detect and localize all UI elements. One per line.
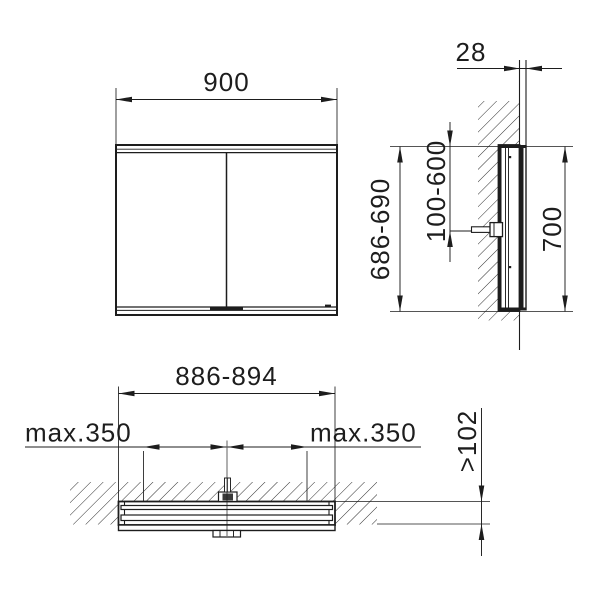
- arrowhead: [397, 296, 403, 312]
- wall-hatch: [478, 101, 520, 147]
- dim-label-max350-right: max.350: [310, 418, 417, 448]
- hinge-mark: [509, 156, 511, 158]
- arrowhead: [562, 147, 568, 163]
- bolt-shaft: [472, 227, 491, 233]
- dim-recess-depth: >102: [452, 408, 484, 556]
- arrowhead: [397, 147, 403, 163]
- hanger-bolt: [450, 223, 503, 237]
- arrowhead: [211, 444, 227, 450]
- mirror-door-slab: [520, 146, 524, 309]
- screw-head: [223, 494, 234, 501]
- wall-hatch: [70, 482, 119, 525]
- bolt-head: [490, 223, 503, 237]
- dim-mounting-height: 100-600: [421, 122, 453, 262]
- plan-view: 886-894 max.350 max.350 >102: [25, 361, 490, 556]
- arrowhead: [119, 391, 135, 397]
- front-view: 900: [116, 67, 337, 315]
- top-cap: [499, 145, 527, 148]
- logo-mark: [325, 305, 331, 307]
- dim-height-700: 700: [537, 147, 568, 312]
- bottom-handle-bar: [210, 307, 243, 310]
- dim-label-100-600: 100-600: [421, 140, 451, 242]
- arrowhead: [116, 97, 132, 103]
- arrowhead: [144, 444, 160, 450]
- dim-label-gt102: >102: [452, 410, 482, 473]
- arrowhead: [228, 444, 244, 450]
- side-view: 28 686-690 100-600 700: [365, 37, 573, 350]
- dim-label-886-894: 886-894: [175, 361, 277, 391]
- dim-label-28: 28: [456, 37, 487, 67]
- wall-hatch: [335, 482, 377, 525]
- dim-width-900: 900: [116, 67, 337, 144]
- arrowhead: [562, 296, 568, 312]
- arrowhead: [321, 97, 337, 103]
- arrowhead: [291, 444, 307, 450]
- bottom-cap: [499, 308, 527, 311]
- drawing-svg: 900: [0, 0, 600, 600]
- dim-protrusion-28: 28: [456, 37, 562, 71]
- dim-label-900: 900: [203, 67, 249, 97]
- hinge-mark: [509, 266, 511, 268]
- dim-label-max350-left: max.350: [25, 418, 132, 448]
- dim-recess-height: 686-690: [365, 147, 403, 312]
- arrowhead: [319, 391, 335, 397]
- dim-label-686-690: 686-690: [365, 178, 395, 280]
- arrowhead: [479, 486, 485, 502]
- dim-label-700: 700: [537, 206, 567, 252]
- dimension-drawing: 900: [0, 0, 600, 600]
- arrowhead: [479, 524, 485, 540]
- arrowhead: [504, 66, 520, 72]
- arrowhead: [526, 66, 542, 72]
